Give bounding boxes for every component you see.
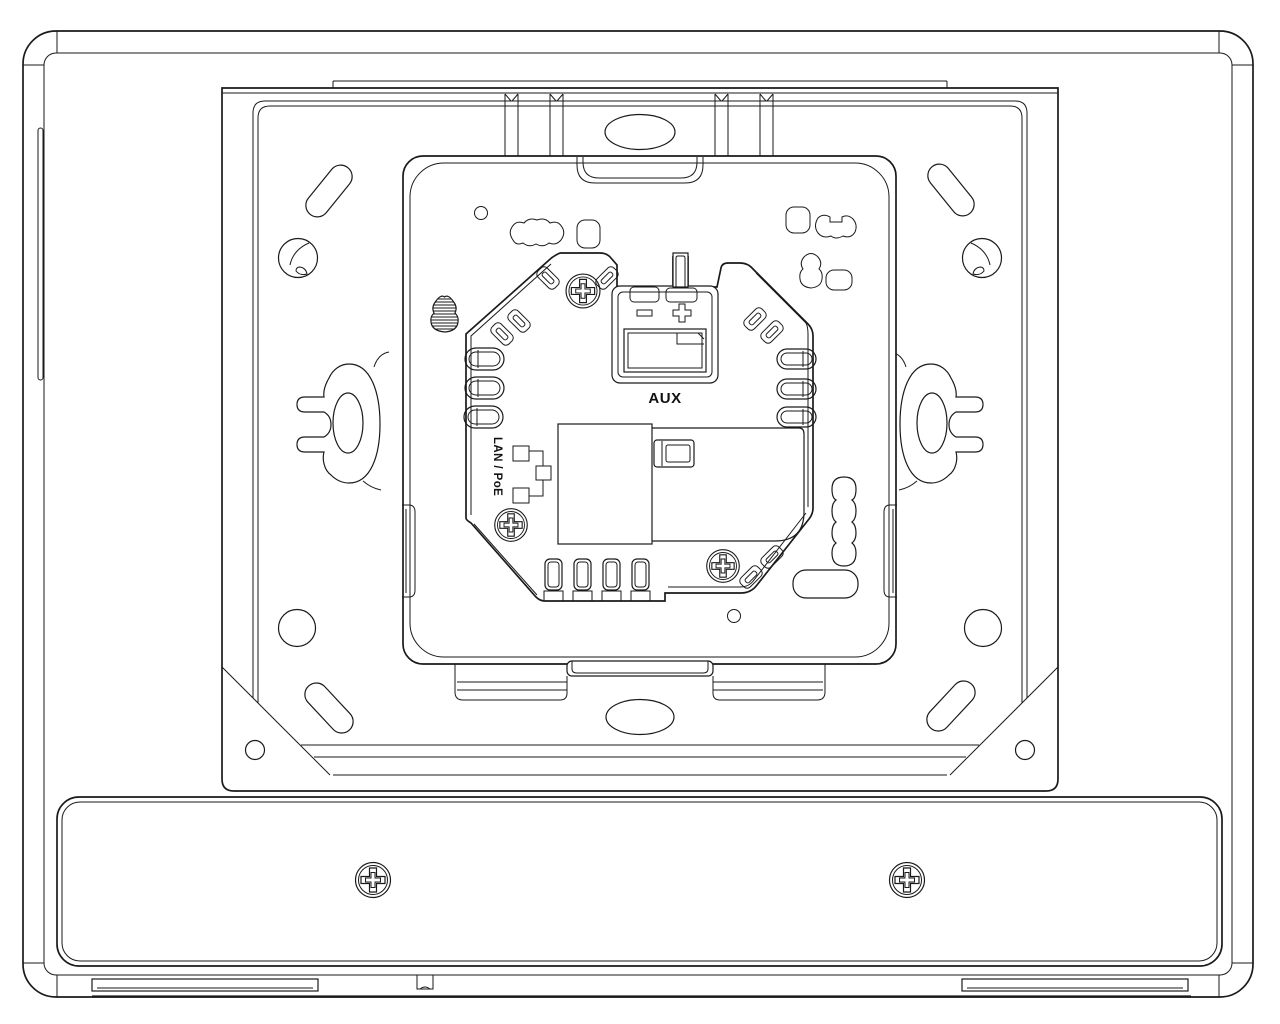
rear-view-technical-drawing: AUX LAN / PoE [0,0,1280,1024]
rubber-foot-right [962,979,1188,991]
bottom-strip [92,975,1191,997]
top-step-line [333,81,947,88]
lan-module-box [558,424,652,544]
side-vent-slit [38,128,43,380]
connection-module: AUX LAN / PoE [464,253,816,601]
rubber-foot-left [92,979,318,991]
aux-label: AUX [648,390,681,407]
drawing-canvas: AUX LAN / PoE [0,0,1280,1024]
stand-base [57,797,1222,966]
release-tab [673,253,688,287]
connector-stub[interactable] [654,440,694,467]
lan-poe-label: LAN / PoE [491,437,503,496]
bottom-notch [417,975,433,989]
